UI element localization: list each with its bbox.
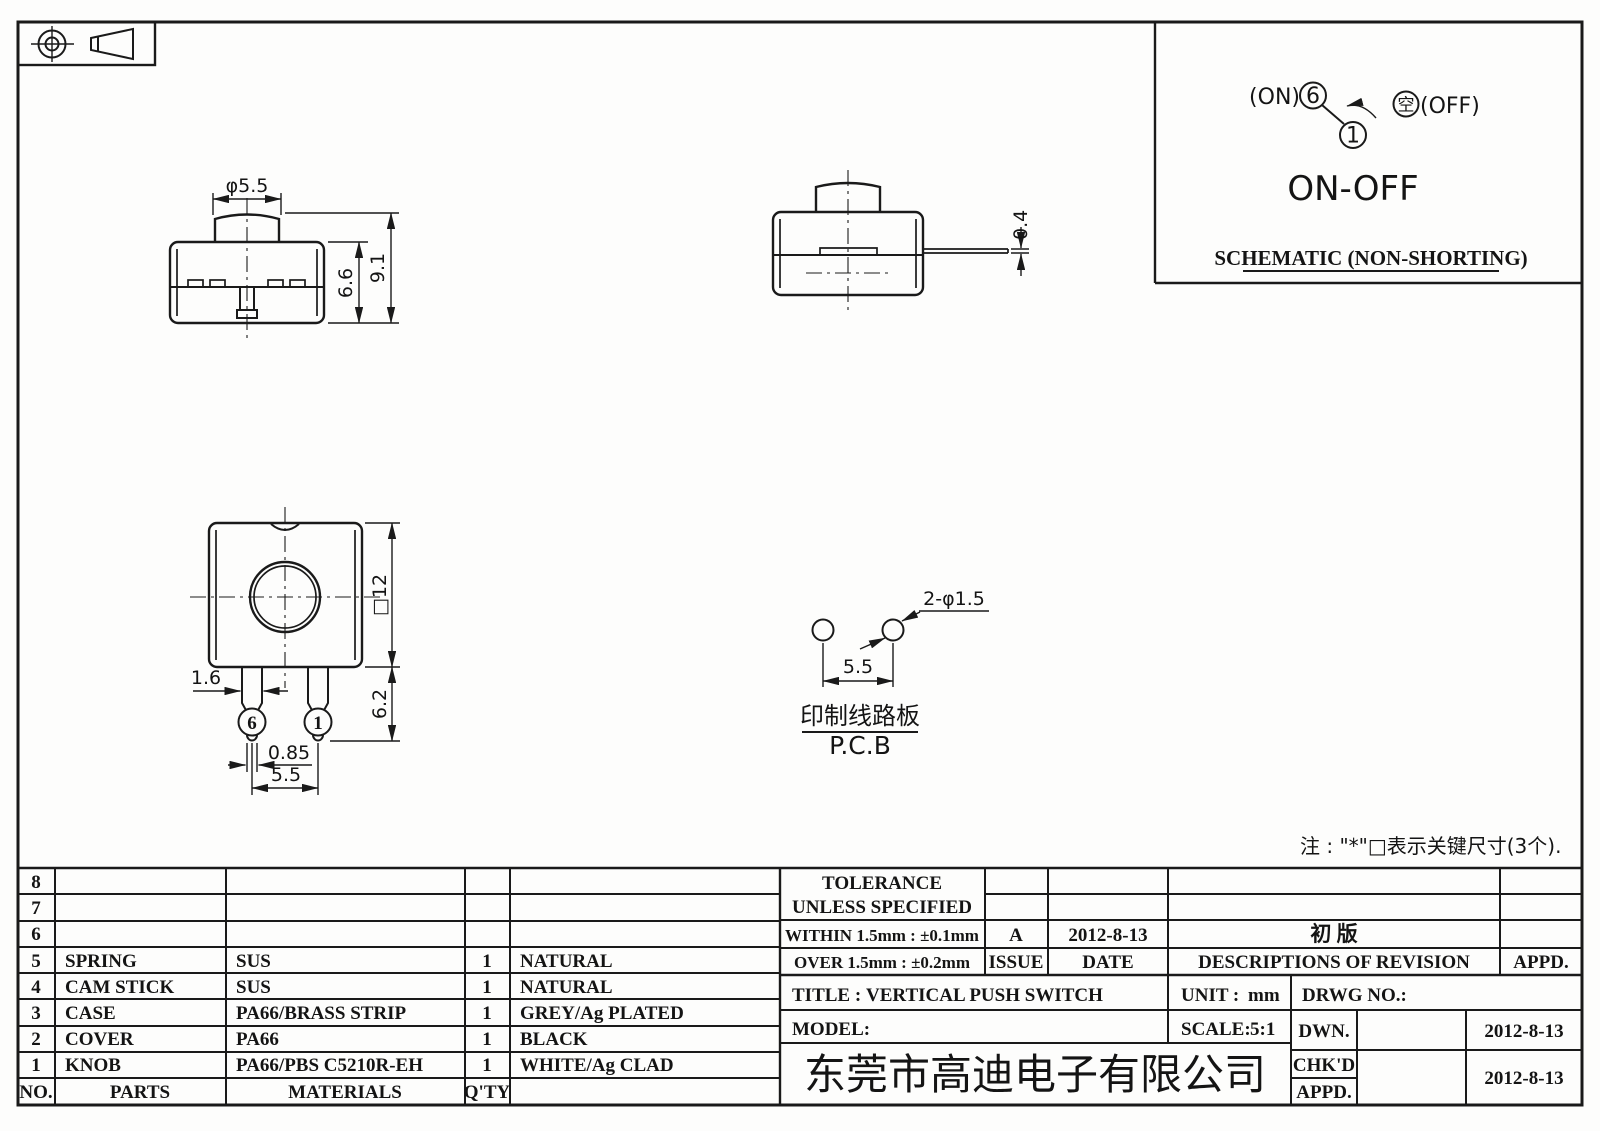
revision-desc-label: DESCRIPTIONS OF REVISION [1198,952,1470,973]
part-name: KNOB [65,1055,121,1076]
revision-issue-value: A [1009,925,1023,946]
dwn-label: DWN. [1298,1021,1349,1042]
chkd-label: CHK'D [1293,1055,1355,1076]
part-material: PA66/BRASS STRIP [236,1003,407,1024]
part-row-no: 3 [31,1003,41,1024]
part-name: SPRING [65,951,137,972]
revision-desc-value: 初 版 [1310,922,1357,946]
model-label: MODEL: [792,1019,870,1040]
pcb-holes-label: 2-φ1.5 [923,588,985,610]
part-material: SUS [236,951,271,972]
scale-label: SCALE: [1181,1019,1251,1040]
part-finish: NATURAL [520,951,613,972]
title-value: VERTICAL PUSH SWITCH [866,985,1103,1006]
revision-date-label: DATE [1082,952,1133,973]
bottom-dim-pin-width: 1.6 [191,667,288,691]
front-view: φ5.5 6.6 9.1 [170,175,399,342]
parts-table: 8 7 6 5 SPRING SUS 1 NATURAL 4 CAM STICK… [19,872,683,1103]
part-finish: NATURAL [520,977,613,998]
part-qty: 1 [482,1029,492,1050]
part-row-no: 1 [31,1055,41,1076]
pcb-hole-left [813,620,834,641]
parts-header-materials: MATERIALS [288,1082,402,1103]
part-row-no: 4 [31,977,41,998]
title-label: TITLE : [792,985,861,1006]
part-qty: 1 [482,1003,492,1024]
dim-tip-width-label: 0.85 [268,742,310,764]
schematic-panel: (ON) 6 1 空 (OFF) ON-OFF SCHEMATIC (NON-S… [1155,23,1581,283]
part-row-no: 5 [31,951,41,972]
dim-total-height-label: 9.1 [367,253,389,283]
part-row-no: 8 [31,872,41,893]
part-finish: WHITE/Ag CLAD [520,1055,674,1076]
schematic-rotate-arrow-icon [1347,105,1376,118]
schematic-terminal-6-label: 6 [1306,84,1320,109]
part-material: SUS [236,977,271,998]
bottom-dim-pin-length: 6.2 [330,667,400,741]
dim-body-square-label: □12 [369,574,391,616]
part-qty: 1 [482,1055,492,1076]
part-name: COVER [65,1029,134,1050]
dim-pin-pitch-label: 5.5 [271,764,301,786]
unit-value: mm [1248,985,1280,1006]
unit-label: UNIT : [1181,985,1239,1006]
tolerance-title-line1: TOLERANCE [822,873,942,894]
first-angle-projection-icon [31,26,133,62]
part-qty: 1 [482,977,492,998]
part-qty: 1 [482,951,492,972]
revision-issue-label: ISSUE [989,952,1044,973]
projection-symbol [18,22,155,65]
parts-header-no: NO. [19,1082,52,1103]
dim-pin-width-label: 1.6 [191,667,221,689]
part-material: PA66 [236,1029,279,1050]
dwn-date: 2012-8-13 [1484,1021,1563,1042]
tolerance-within: WITHIN 1.5mm : ±0.1mm [785,926,979,945]
part-row-no: 6 [31,924,41,945]
part-finish: GREY/Ag PLATED [520,1003,684,1024]
drwg-no-label: DRWG NO.: [1302,985,1407,1006]
parts-header-qty: Q'TY [464,1082,511,1103]
company-name: 东莞市高迪电子有限公司 [804,1050,1266,1099]
part-name: CAM STICK [65,977,174,998]
schematic-terminal-1-label: 1 [1346,124,1360,149]
pcb-hole-right [883,620,904,641]
pcb-label-en: P.C.B [829,731,891,760]
tolerance-over: OVER 1.5mm : ±0.2mm [794,953,970,972]
revision-date-value: 2012-8-13 [1068,925,1147,946]
pcb-label-cn: 印制线路板 [800,702,920,730]
schematic-on-label: (ON) [1249,85,1300,110]
key-dimension-note: 注 : "*"□表示关键尺寸(3个). [1300,834,1561,858]
chkd-date: 2012-8-13 [1484,1068,1563,1089]
appd-label: APPD. [1296,1082,1351,1103]
schematic-off-label: (OFF) [1420,94,1480,119]
tolerance-title-line2: UNLESS SPECIFIED [792,897,972,918]
pcb-layout: 5.5 2-φ1.5 印制线路板 P.C.B [800,588,989,760]
dim-lead-thickness-label: 0.4 [1010,210,1032,240]
part-name: CASE [65,1003,116,1024]
pin-1-label: 1 [313,713,323,734]
part-material: PA66/PBS C5210R-EH [236,1055,423,1076]
scale-value: 5:1 [1250,1019,1275,1040]
side-body [773,212,923,295]
part-row-no: 2 [31,1029,41,1050]
parts-header-parts: PARTS [110,1082,170,1103]
bottom-view: 6 1 1.6 □12 6.2 0.85 [190,507,400,795]
dim-body-height-label: 6.6 [335,268,357,298]
dim-knob-dia-label: φ5.5 [226,175,269,197]
side-view: 0.4 [773,170,1032,312]
dim-pin-length-label: 6.2 [369,689,391,719]
pin-6-label: 6 [247,713,257,734]
revision-appd-label: APPD. [1513,952,1568,973]
drawing-canvas: φ5.5 6.6 9.1 [0,0,1600,1131]
schematic-function-label: ON-OFF [1287,169,1418,209]
pcb-dim-pitch-label: 5.5 [843,656,873,678]
tolerance-block: TOLERANCE UNLESS SPECIFIED WITHIN 1.5mm … [785,873,979,972]
schematic-caption: SCHEMATIC (NON-SHORTING) [1214,246,1527,270]
bottom-dim-body-square: □12 [365,523,400,667]
part-finish: BLACK [520,1029,588,1050]
pcb-holes-leader: 2-φ1.5 [860,588,989,649]
schematic-off-symbol: 空 [1398,96,1415,116]
drawing-sheet: φ5.5 6.6 9.1 [0,0,1600,1131]
side-dim-lead-thickness: 0.4 [1010,210,1032,276]
part-row-no: 7 [31,898,41,919]
